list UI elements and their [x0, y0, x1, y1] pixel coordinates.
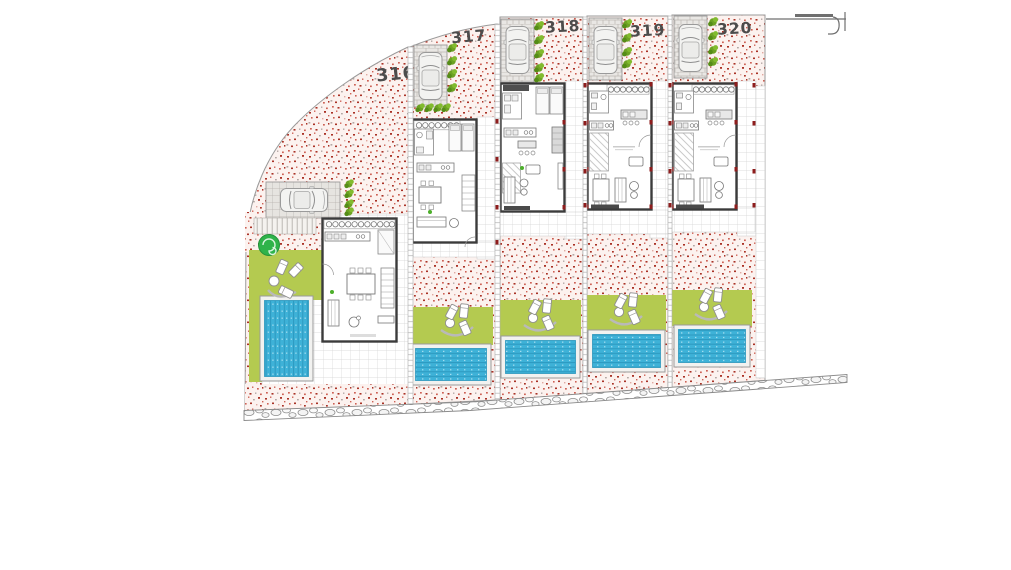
- plot-316-access-ramp: [254, 218, 316, 234]
- plot-320-lawn: [672, 290, 752, 326]
- plot-320-side-path: [756, 86, 765, 378]
- plot-319-terrace-strip: [587, 210, 668, 234]
- plot-318-terrace-strip: [500, 212, 583, 236]
- plot-320-car: [677, 25, 704, 72]
- site-plan-drawing: 316: [0, 0, 1011, 570]
- plot-316-tree: [259, 235, 280, 256]
- plot-317-pool: [411, 344, 491, 385]
- plot-320: 320: [671, 15, 766, 387]
- divider-319-320: [668, 16, 672, 388]
- plot-320-house: [671, 82, 738, 210]
- divider-316-317: [408, 47, 413, 404]
- plot-319: 319: [586, 16, 670, 393]
- plot-320-pool: [674, 325, 750, 367]
- street-edge: [766, 12, 846, 34]
- plot-316-house: [323, 219, 397, 342]
- plot-318-label: 318: [545, 17, 581, 37]
- plot-317-label: 317: [450, 26, 487, 47]
- divider-317-318: [495, 24, 500, 400]
- plot-317: 317: [410, 24, 497, 404]
- plot-319-car: [592, 27, 619, 74]
- plot-319-pool: [588, 330, 665, 372]
- plot-317-car: [417, 53, 444, 100]
- plot-318-car: [504, 27, 531, 74]
- plot-319-lawn: [587, 295, 666, 331]
- plot-317-terrace-tiles: [477, 117, 496, 259]
- plot-317-house: [413, 120, 477, 248]
- plot-320-label: 320: [717, 19, 753, 39]
- plot-316: 316: [245, 47, 417, 411]
- plot-319-house: [586, 82, 653, 210]
- plot-318-house: [501, 84, 566, 212]
- site-plan-canvas: 316: [0, 0, 1011, 570]
- plot-320-terrace-strip: [672, 208, 755, 232]
- plot-318: 318: [500, 17, 584, 400]
- plot-318-pool: [501, 336, 580, 378]
- plot-316-car: [281, 186, 328, 213]
- plot-319-label: 319: [630, 21, 666, 41]
- plot-316-pool: [260, 296, 313, 381]
